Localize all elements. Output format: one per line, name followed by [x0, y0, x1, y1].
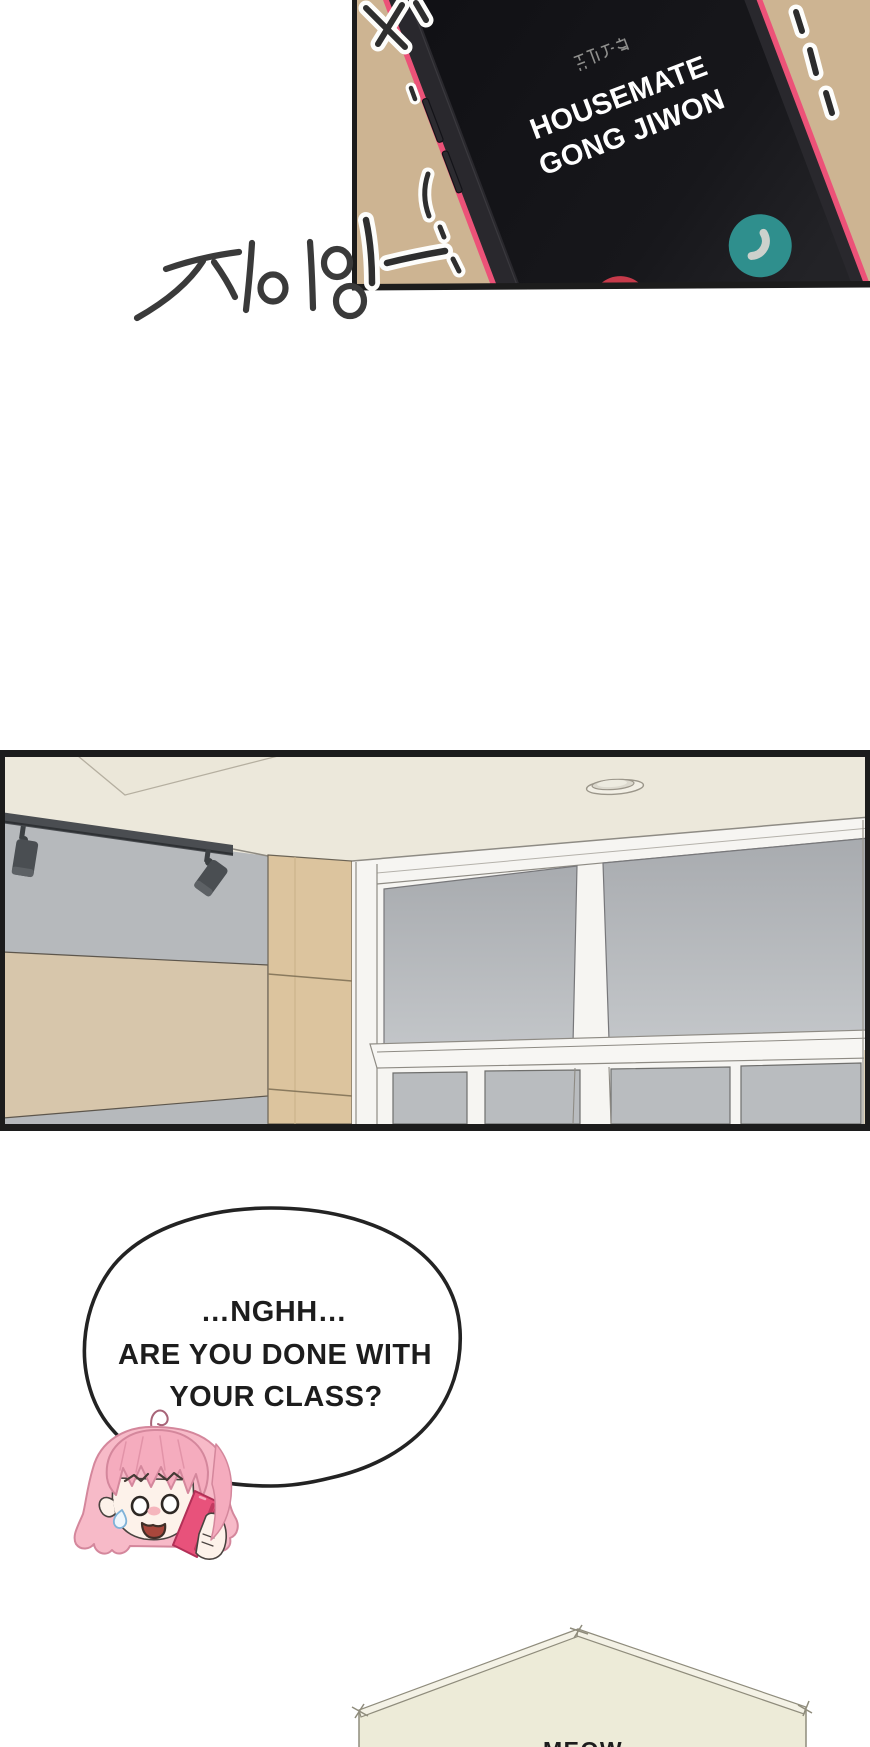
svg-text:…MEOW…: …MEOW… [518, 1737, 647, 1747]
svg-text:YOUR CLASS?: YOUR CLASS? [169, 1381, 382, 1413]
svg-text:ARE YOU DONE WITH: ARE YOU DONE WITH [118, 1339, 432, 1371]
svg-text:…NGHH…: …NGHH… [201, 1296, 347, 1328]
